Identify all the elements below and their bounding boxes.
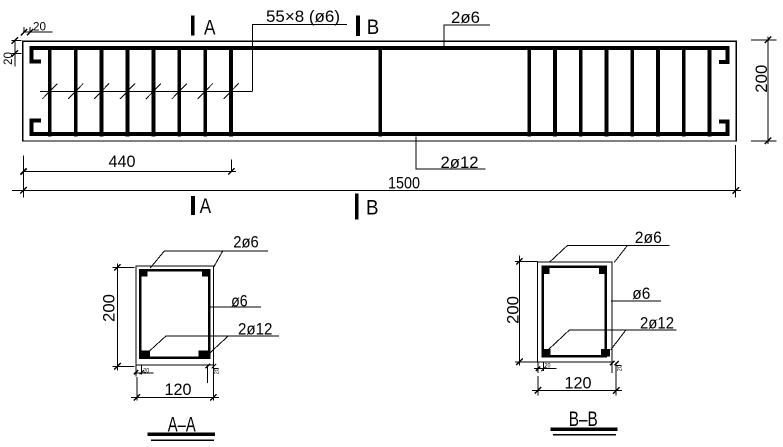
svg-text:1500: 1500 [388, 174, 420, 193]
svg-text:20: 20 [214, 368, 221, 374]
svg-text:B: B [366, 195, 379, 219]
svg-text:2ø6: 2ø6 [233, 233, 259, 252]
svg-text:2ø12: 2ø12 [441, 153, 479, 172]
svg-text:2ø12: 2ø12 [640, 313, 674, 332]
svg-text:120: 120 [565, 374, 592, 393]
svg-text:20: 20 [143, 368, 149, 375]
svg-text:440: 440 [109, 152, 136, 171]
svg-text:ø6: ø6 [231, 291, 248, 310]
svg-text:20: 20 [545, 362, 551, 369]
svg-text:2ø6: 2ø6 [451, 8, 480, 27]
svg-text:20: 20 [33, 21, 46, 33]
svg-text:120: 120 [165, 380, 192, 399]
svg-text:20: 20 [617, 365, 624, 371]
svg-text:20: 20 [3, 52, 15, 65]
svg-text:2ø6: 2ø6 [635, 228, 662, 247]
svg-text:200: 200 [504, 296, 523, 324]
svg-text:55×8 (ø6): 55×8 (ø6) [266, 7, 340, 26]
svg-text:ø6: ø6 [632, 284, 650, 303]
svg-text:200: 200 [752, 65, 771, 93]
svg-text:B–B: B–B [569, 408, 598, 431]
svg-text:2ø12: 2ø12 [238, 319, 273, 338]
svg-text:A: A [204, 15, 216, 39]
svg-text:A: A [200, 194, 212, 218]
svg-text:B: B [367, 15, 380, 39]
svg-text:200: 200 [100, 294, 119, 322]
